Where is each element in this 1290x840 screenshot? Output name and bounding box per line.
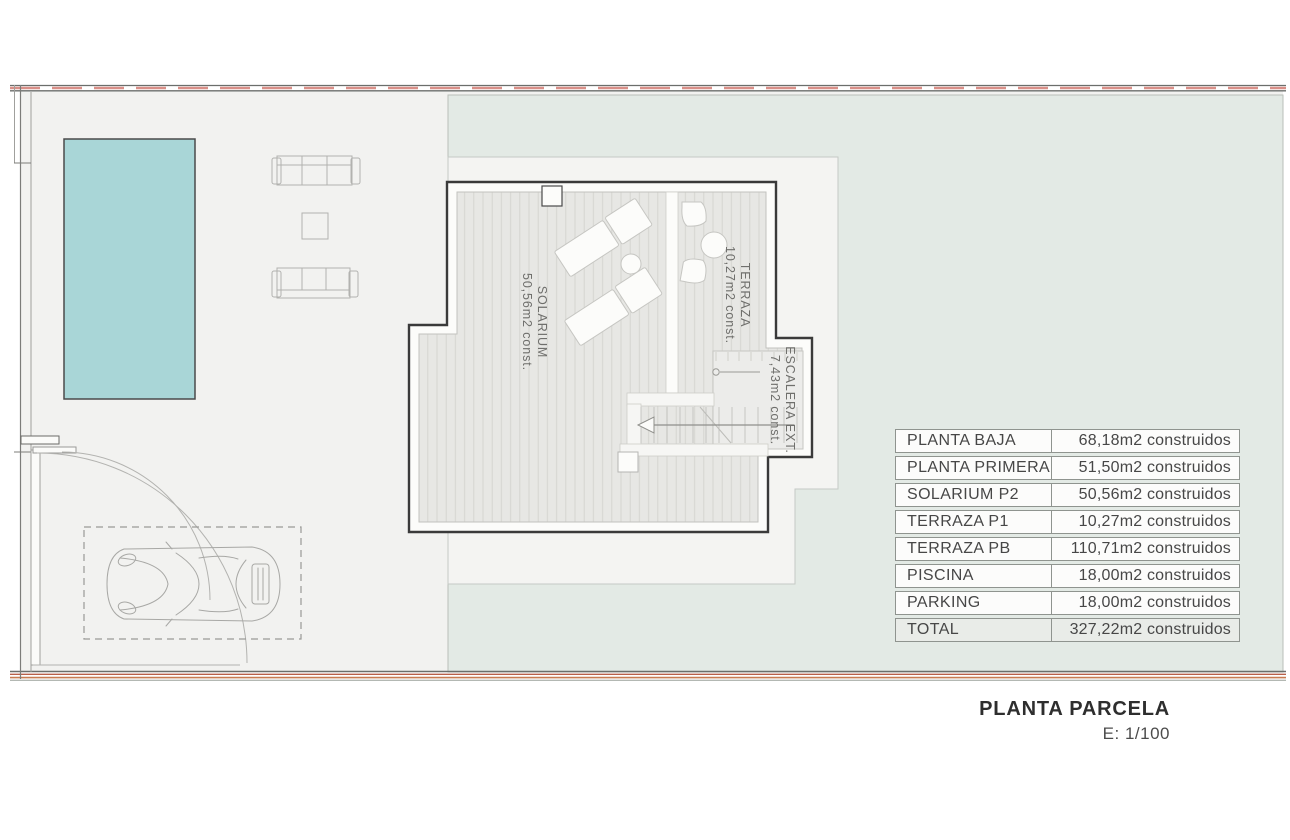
table-row-total: TOTAL 327,22m2 construidos [895, 618, 1240, 642]
boundary-bottom [10, 672, 1286, 681]
table-row-label: TERRAZA P1 [896, 511, 1052, 533]
chimney-square [542, 186, 562, 206]
table-row: TERRAZA PB 110,71m2 construidos [895, 537, 1240, 561]
wall-band-lower [620, 444, 768, 456]
site-plan-page: SOLARIUM 50,56m2 const. TERRAZA 10,27m2 … [0, 0, 1290, 840]
table-row-label: PLANTA BAJA [896, 430, 1052, 452]
table-row-label: PLANTA PRIMERA [896, 457, 1052, 479]
table-row: TERRAZA P1 10,27m2 construidos [895, 510, 1240, 534]
escalera-label: ESCALERA EXT. [783, 346, 797, 454]
table-row-value: 68,18m2 construidos [1052, 430, 1239, 452]
table-row-value: 110,71m2 construidos [1052, 538, 1239, 560]
wall-band-vertical [666, 192, 678, 393]
table-row-value: 50,56m2 construidos [1052, 484, 1239, 506]
table-row: SOLARIUM P2 50,56m2 construidos [895, 483, 1240, 507]
escalera-area-label: 7,43m2 const. [768, 355, 782, 445]
table-row-label: SOLARIUM P2 [896, 484, 1052, 506]
table-row-label: PARKING [896, 592, 1052, 614]
terraza-area-label: 10,27m2 const. [723, 246, 737, 344]
title-block: PLANTA PARCELA E: 1/100 [979, 698, 1170, 744]
table-row: PISCINA 18,00m2 construidos [895, 564, 1240, 588]
terrace-chair [682, 202, 706, 226]
table-row: PARKING 18,00m2 construidos [895, 591, 1240, 615]
gate-wall-pier [31, 450, 40, 665]
solarium-area-label: 50,56m2 const. [520, 273, 534, 371]
table-row-value: 51,50m2 construidos [1052, 457, 1239, 479]
table-row-label: PISCINA [896, 565, 1052, 587]
table-row: PLANTA PRIMERA 51,50m2 construidos [895, 456, 1240, 480]
table-row-value: 18,00m2 construidos [1052, 592, 1239, 614]
table-row-value: 18,00m2 construidos [1052, 565, 1239, 587]
building: SOLARIUM 50,56m2 const. TERRAZA 10,27m2 … [409, 182, 812, 532]
table-row-value: 10,27m2 construidos [1052, 511, 1239, 533]
terraza-label: TERRAZA [738, 263, 752, 328]
areas-table: PLANTA BAJA 68,18m2 construidos PLANTA P… [895, 429, 1240, 645]
table-row-value: 327,22m2 construidos [1052, 619, 1239, 641]
table-row-label: TOTAL [896, 619, 1052, 641]
solarium-label: SOLARIUM [535, 286, 549, 359]
table-row-label: TERRAZA PB [896, 538, 1052, 560]
gate-post [21, 436, 59, 444]
terrace-chair [680, 257, 708, 285]
lounger-side-table [621, 254, 641, 274]
table-row: PLANTA BAJA 68,18m2 construidos [895, 429, 1240, 453]
plan-scale: E: 1/100 [979, 724, 1170, 744]
swimming-pool [64, 139, 195, 399]
pillar-square [618, 452, 638, 472]
plan-title: PLANTA PARCELA [979, 698, 1170, 721]
boundary-top [10, 86, 1286, 91]
